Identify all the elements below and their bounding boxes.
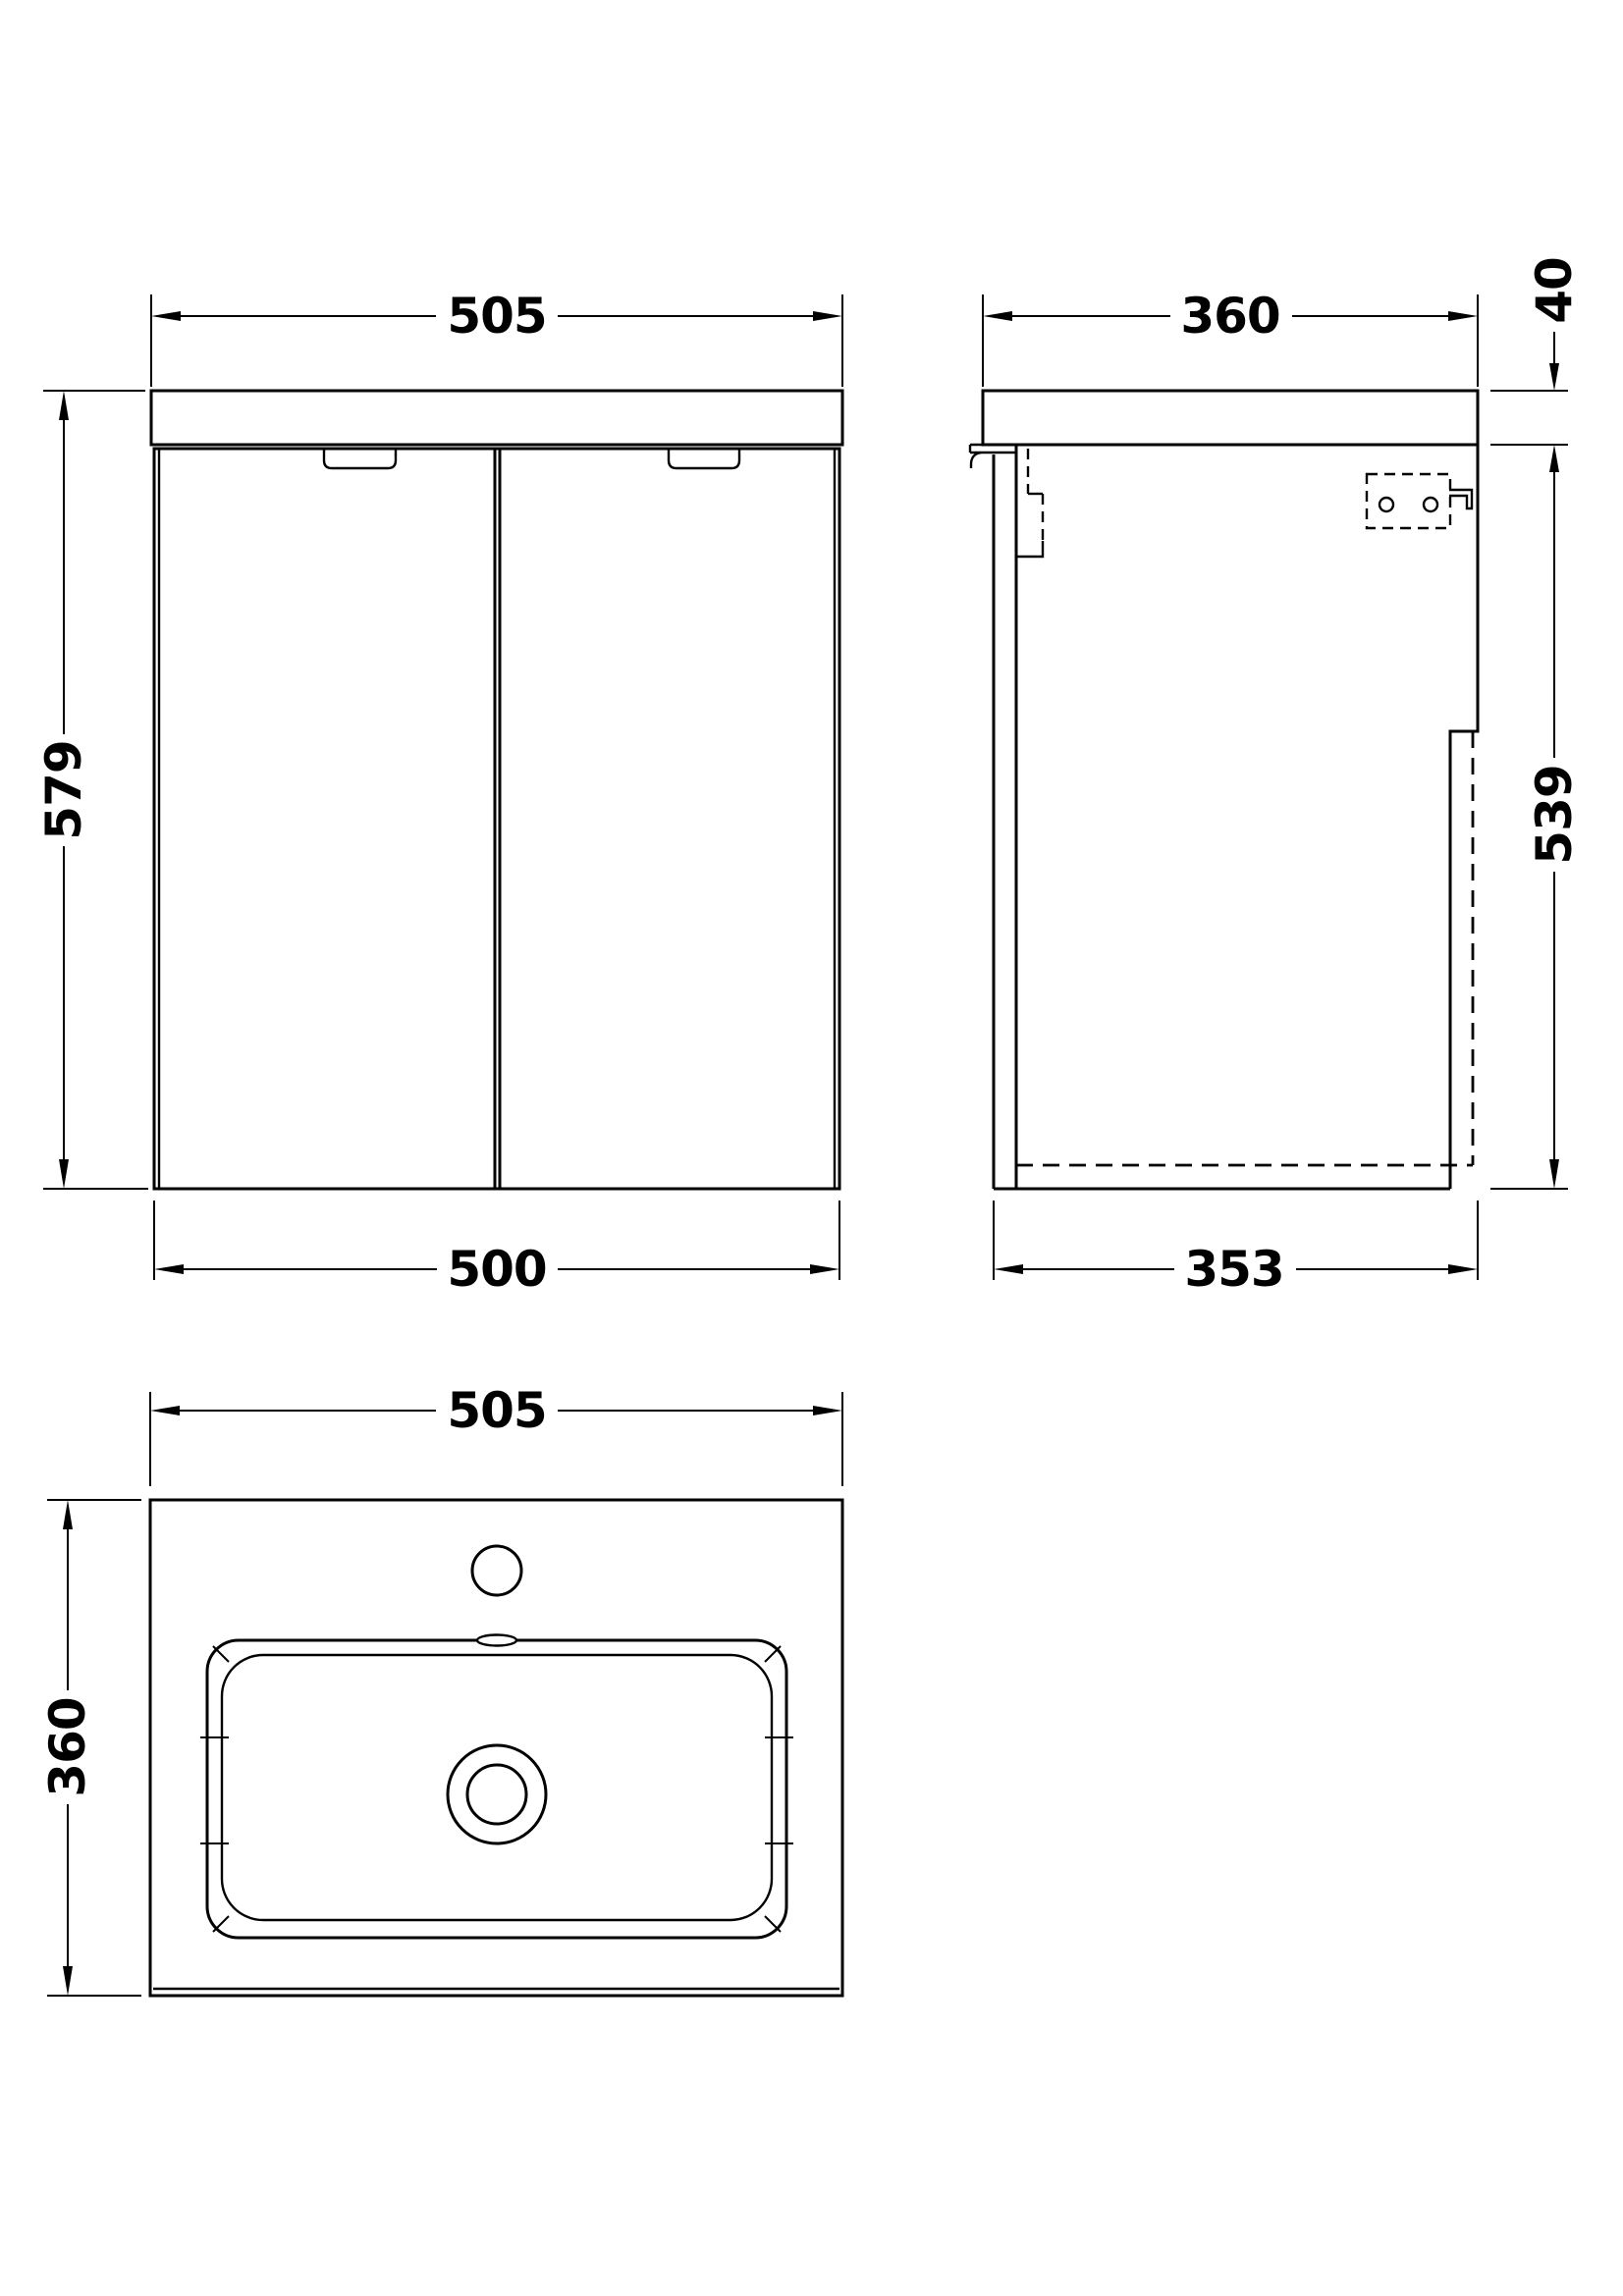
side-dim-cabinet-height-label: 539 [1526, 765, 1583, 864]
front-countertop [151, 391, 842, 445]
side-wall-hook [1449, 490, 1472, 508]
front-dim-width-cabinet: 500 [154, 1201, 839, 1298]
front-dim-width-top: 505 [151, 288, 842, 387]
front-left-door-handle [324, 449, 396, 468]
front-dim-height-label: 579 [35, 740, 92, 839]
plan-drain-outer [448, 1745, 546, 1843]
side-hinge-bottom [1016, 541, 1043, 557]
plan-view [150, 1500, 842, 1996]
plan-drain-inner [467, 1765, 526, 1824]
side-countertop [983, 391, 1478, 445]
side-view [970, 391, 1478, 1189]
side-dim-cabinet-depth-label: 353 [1184, 1241, 1283, 1298]
front-cabinet-body [154, 449, 839, 1189]
front-dim-width-cabinet-label: 500 [447, 1241, 546, 1298]
technical-drawing-page: 505 579 500 [0, 0, 1623, 2296]
side-dim-depth-top: 360 [983, 288, 1478, 387]
plan-basin-rim-outer [207, 1640, 786, 1938]
front-dim-height: 579 [35, 391, 148, 1189]
side-dim-worktop-thickness-label: 40 [1526, 257, 1583, 324]
plan-basin-side-ticks [200, 1737, 793, 1843]
side-drip-curl [971, 453, 981, 468]
side-dim-depth-top-label: 360 [1180, 288, 1279, 345]
plan-countertop [150, 1500, 842, 1996]
front-view [151, 391, 842, 1189]
vanity-unit-dimension-drawing: 505 579 500 [0, 0, 1623, 2296]
side-dim-worktop-thickness: 40 [1490, 257, 1583, 445]
front-dim-width-top-label: 505 [447, 288, 546, 345]
plan-tap-hole [472, 1546, 521, 1595]
plan-dim-depth: 360 [39, 1500, 141, 1996]
plan-basin-rim-inner [222, 1655, 772, 1920]
side-dim-cabinet-height: 539 [1490, 445, 1583, 1189]
side-dim-cabinet-depth: 353 [994, 1201, 1478, 1298]
side-bracket-screw-left [1380, 498, 1393, 511]
side-bracket-screw-right [1424, 498, 1437, 511]
plan-basin-corner-ticks [213, 1646, 781, 1932]
plan-dim-width-label: 505 [447, 1382, 546, 1439]
front-right-door-handle [669, 449, 739, 468]
plan-dim-width: 505 [150, 1382, 842, 1486]
plan-dim-depth-label: 360 [39, 1697, 96, 1796]
plan-overflow-slot [477, 1635, 516, 1646]
